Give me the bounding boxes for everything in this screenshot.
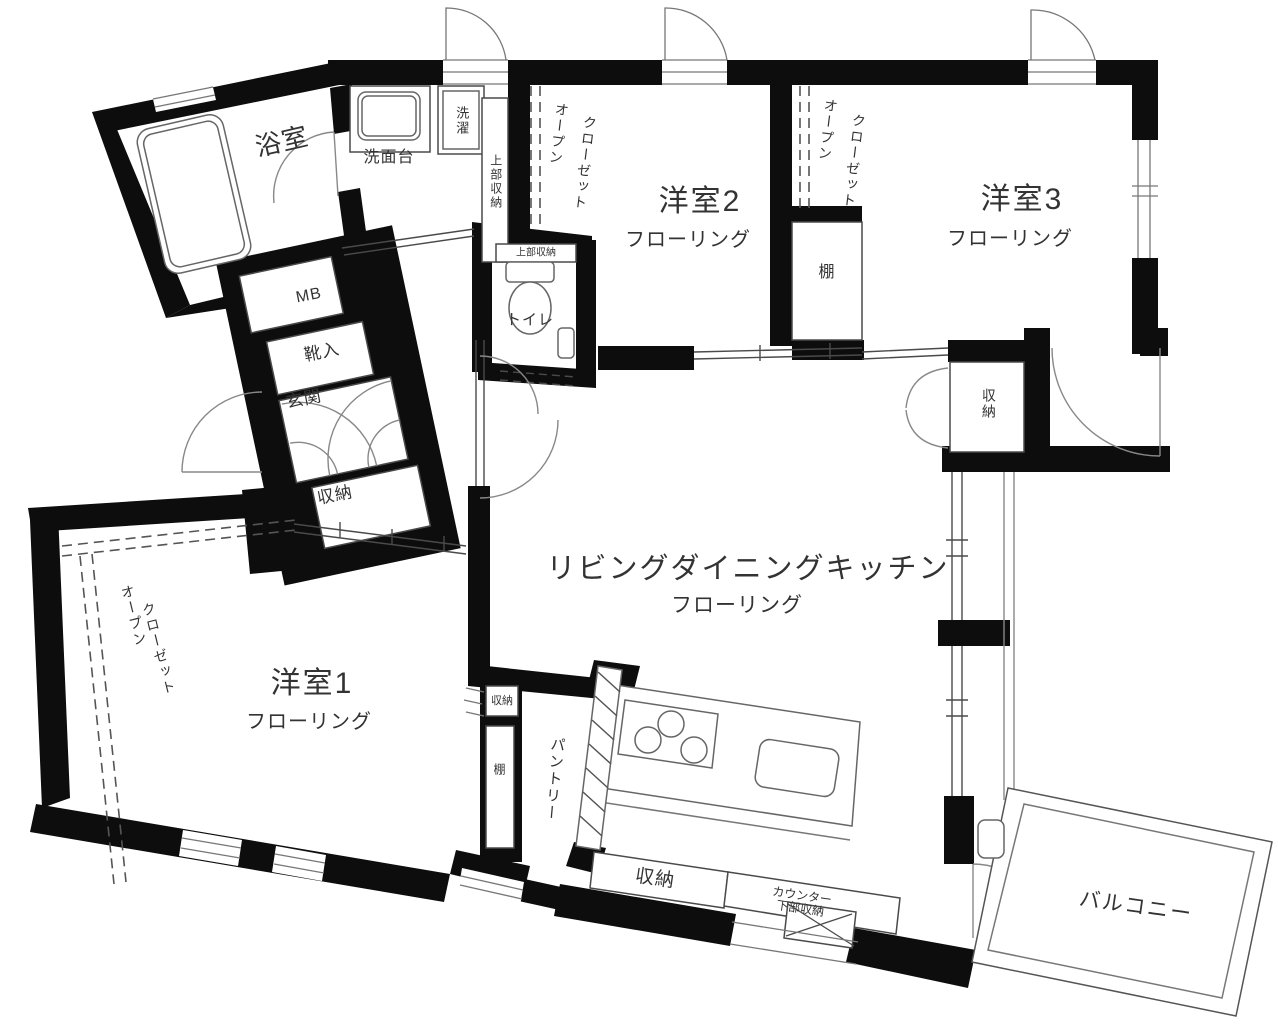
- room3-slide-line: [862, 348, 948, 359]
- room1-window-1: [179, 830, 242, 866]
- toilet-tank: [506, 262, 554, 282]
- label-shelf3: 棚: [818, 264, 835, 282]
- hall-door-arc-2: [480, 420, 558, 498]
- label-upper-storage-wash: 上部収納: [488, 154, 501, 210]
- floorplan: 浴室 洗面台 洗濯 上部収納 オープン クローゼット 洋室2 フローリング オー…: [0, 0, 1278, 1028]
- label-room2: 洋室2: [659, 185, 742, 219]
- window-mid-chunk: [938, 620, 1010, 646]
- room1-window-2: [272, 846, 326, 881]
- label-pantry-shelf: 棚: [493, 763, 506, 776]
- closet2-dashes: [531, 86, 540, 224]
- room3-bottom-piece: [948, 340, 1026, 362]
- label-mini-storage: 収納: [491, 695, 513, 707]
- top-window-arc-2: [665, 8, 727, 60]
- label-toilet: トイレ: [506, 313, 554, 330]
- label-toilet-upper-storage: 上部収納: [516, 247, 556, 258]
- nook-door-arc: [1052, 348, 1160, 456]
- label-room2-flooring: フローリング: [625, 229, 751, 251]
- label-washer: 洗濯: [454, 106, 469, 136]
- toilet-right-wall: [576, 240, 596, 372]
- room3-window: [1132, 140, 1158, 258]
- nook-top-right-chunk: [1140, 328, 1168, 356]
- room1-top-jut: [242, 486, 292, 574]
- washroom-right-wall: [508, 85, 530, 247]
- top-window-arc-1: [446, 8, 506, 60]
- room2-room3-partition: [770, 84, 792, 346]
- room1-top-wall: [28, 494, 250, 532]
- label-room1: 洋室1: [271, 667, 354, 701]
- window-bottom-chunk: [944, 796, 974, 864]
- room3-right-wall-upper: [1132, 60, 1158, 140]
- label-room3-flooring: フローリング: [947, 228, 1073, 250]
- closet3-dashes: [800, 86, 809, 208]
- label-ldk-flooring: フローリング: [671, 594, 803, 618]
- toilet-paper-holder: [558, 328, 574, 358]
- label-room3: 洋室3: [981, 183, 1064, 217]
- burner-1: [635, 727, 661, 753]
- balcony-step: [978, 820, 1004, 858]
- vanity-sink-inner: [362, 96, 416, 136]
- label-storage-nook: 収納: [980, 388, 996, 420]
- hall-ldk-wall: [468, 486, 490, 682]
- label-ldk: リビングダイニングキッチン: [546, 553, 949, 585]
- kitchen-bottom-band2: [846, 928, 976, 988]
- room2-bottom-wall: [598, 346, 694, 370]
- top-window-arc-3: [1031, 10, 1095, 60]
- label-room1-flooring: フローリング: [246, 711, 372, 733]
- burner-3: [681, 737, 707, 763]
- storage-nook-doors: [906, 368, 948, 448]
- burner-2: [658, 711, 684, 737]
- label-vanity: 洗面台: [363, 149, 414, 167]
- pantry-shelf-box: [486, 726, 514, 848]
